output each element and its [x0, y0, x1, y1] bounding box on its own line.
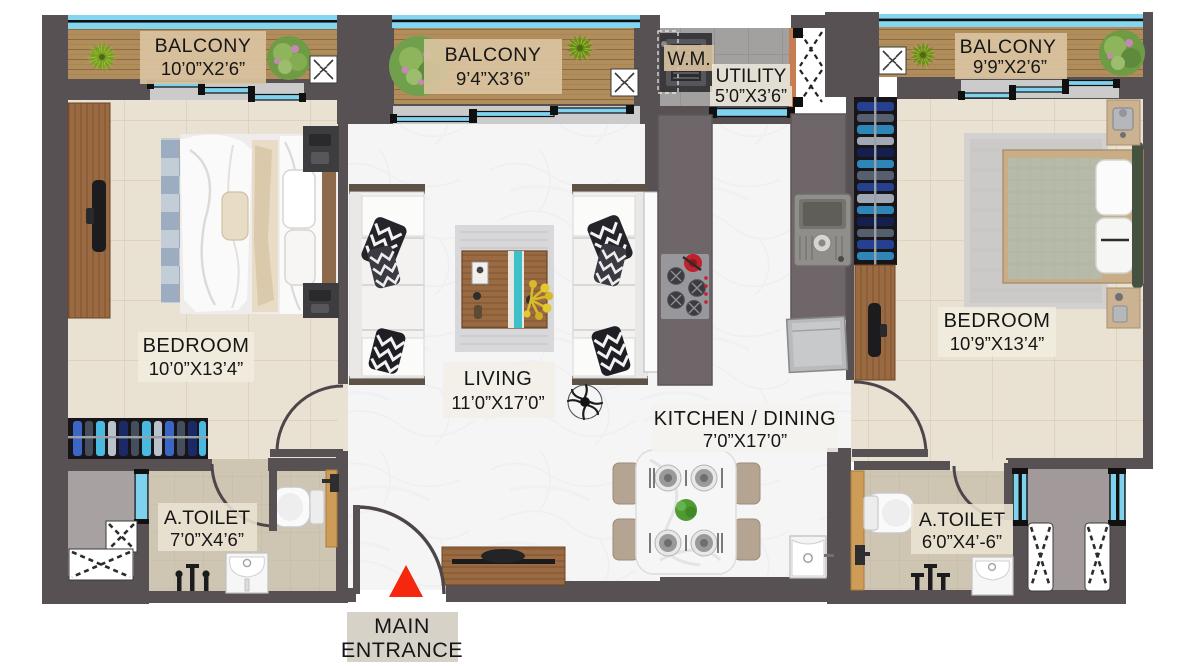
- svg-text:6’0”X4’-6”: 6’0”X4’-6”: [922, 531, 1002, 552]
- svg-text:10’0”X2’6”: 10’0”X2’6”: [161, 58, 245, 79]
- svg-text:KITCHEN / DINING: KITCHEN / DINING: [654, 408, 836, 430]
- svg-text:UTILITY: UTILITY: [716, 66, 787, 87]
- svg-text:BALCONY: BALCONY: [960, 36, 1057, 58]
- svg-text:10’0”X13’4”: 10’0”X13’4”: [149, 358, 244, 379]
- svg-text:11’0”X17’0”: 11’0”X17’0”: [451, 392, 544, 413]
- svg-text:10’9”X13’4”: 10’9”X13’4”: [950, 333, 1045, 354]
- svg-text:BALCONY: BALCONY: [445, 44, 542, 66]
- svg-text:A.TOILET: A.TOILET: [919, 509, 1005, 531]
- svg-text:A.TOILET: A.TOILET: [164, 507, 250, 529]
- svg-text:LIVING: LIVING: [464, 368, 533, 390]
- svg-text:5’0”X3’6”: 5’0”X3’6”: [715, 86, 787, 106]
- svg-text:9’4”X3’6”: 9’4”X3’6”: [456, 68, 530, 89]
- svg-text:W.M.: W.M.: [667, 49, 710, 70]
- svg-text:BEDROOM: BEDROOM: [143, 335, 250, 357]
- svg-text:7’0”X4’6”: 7’0”X4’6”: [170, 529, 244, 550]
- svg-text:ENTRANCE: ENTRANCE: [341, 638, 463, 662]
- svg-text:7’0”X17’0”: 7’0”X17’0”: [703, 430, 787, 451]
- svg-text:BEDROOM: BEDROOM: [944, 310, 1051, 332]
- svg-text:9’9”X2’6”: 9’9”X2’6”: [973, 56, 1047, 77]
- svg-text:BALCONY: BALCONY: [155, 35, 252, 57]
- svg-text:MAIN: MAIN: [374, 614, 430, 638]
